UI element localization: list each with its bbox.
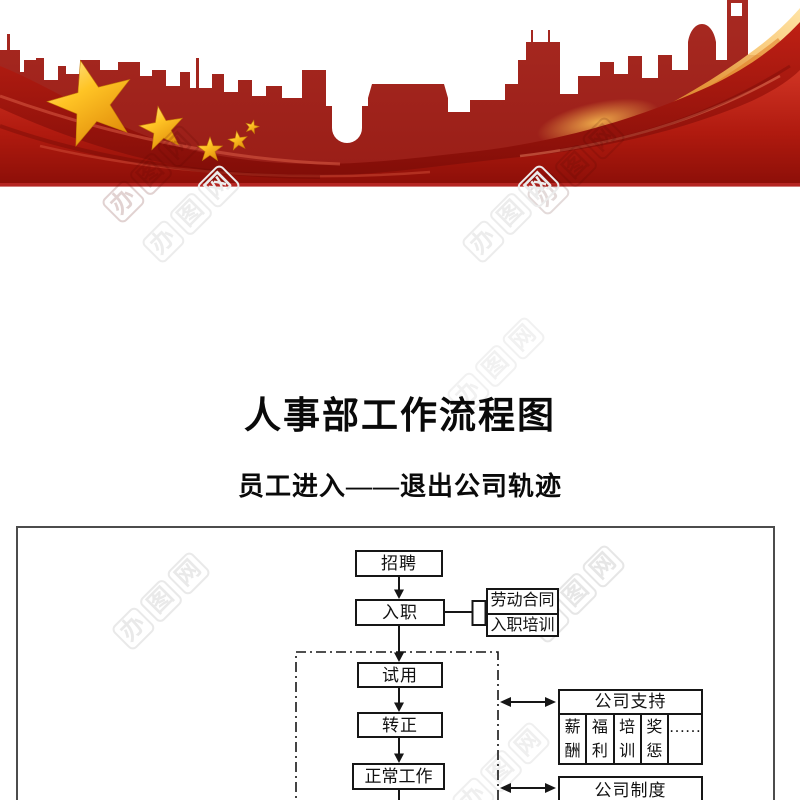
node-company-system: 公司制度	[558, 776, 703, 800]
label-labor-contract: 劳动合同	[488, 590, 557, 613]
node-onboard: 入职	[355, 599, 445, 626]
node-probation: 试用	[357, 662, 443, 688]
support-cell-training: 培训	[613, 715, 640, 765]
banner-graphic	[0, 0, 800, 190]
node-company-support: 公司支持 薪酬 福利 培训 奖惩 ……	[558, 689, 703, 765]
company-support-header: 公司支持	[560, 691, 701, 715]
node-normal-work: 正常工作	[352, 763, 445, 790]
document-page: 办图网 办图网 办图网 办图网 办图网 办图网 办图网 办图网 人事部工作流程图…	[0, 0, 800, 800]
page-title: 人事部工作流程图	[0, 385, 800, 439]
node-onboard-attachments: 劳动合同 入职培训	[486, 588, 559, 637]
support-cell-salary: 薪酬	[560, 715, 585, 765]
node-recruit: 招聘	[355, 550, 443, 577]
support-cell-benefits: 福利	[585, 715, 612, 765]
company-support-cells: 薪酬 福利 培训 奖惩 ……	[560, 715, 701, 765]
label-onboard-training: 入职培训	[488, 613, 557, 638]
node-regularize: 转正	[357, 712, 443, 738]
support-cell-rewards: 奖惩	[640, 715, 667, 765]
banner-bottom-strip	[0, 183, 800, 187]
page-subtitle: 员工进入——退出公司轨迹	[0, 466, 800, 503]
support-cell-ellipsis: ……	[667, 715, 701, 765]
